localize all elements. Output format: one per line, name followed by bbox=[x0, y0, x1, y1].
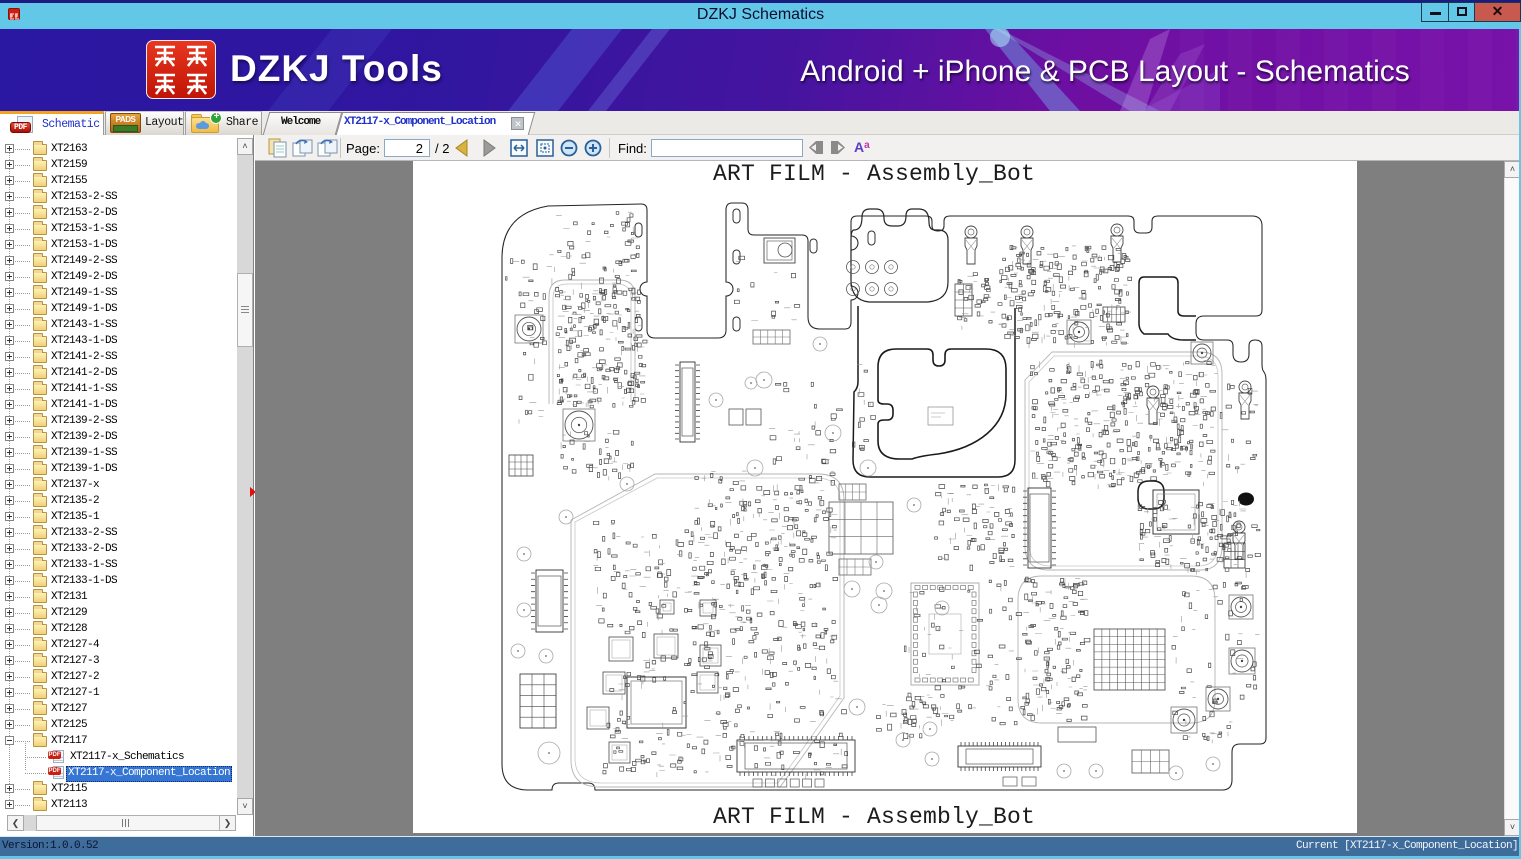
svg-text:ART FILM - Assembly_Bot: ART FILM - Assembly_Bot bbox=[713, 161, 1035, 187]
svg-text:ART FILM - Assembly_Bot: ART FILM - Assembly_Bot bbox=[713, 804, 1035, 830]
